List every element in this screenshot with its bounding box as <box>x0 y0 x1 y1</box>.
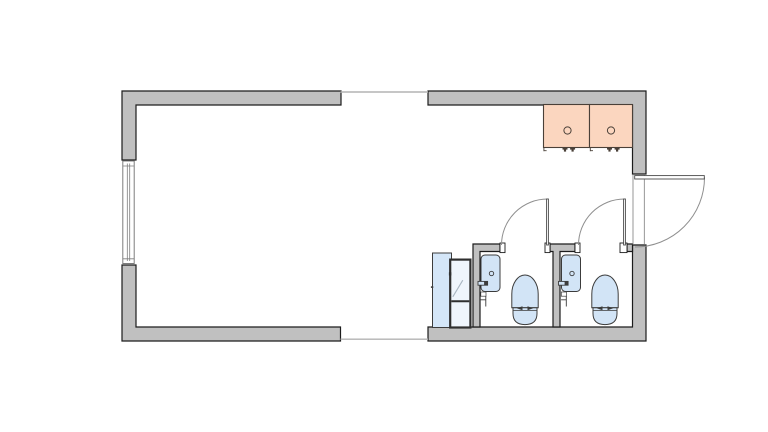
door-jamb <box>575 243 580 253</box>
glide-mark <box>564 148 565 151</box>
stall-door-1-leaf <box>547 199 549 245</box>
desk-1 <box>544 105 590 148</box>
desk-2-grommet <box>607 127 614 134</box>
glide-mark <box>617 148 618 151</box>
exterior-door-leaf <box>635 176 705 179</box>
page-background <box>0 0 768 432</box>
glide-mark <box>609 148 610 151</box>
exterior-door-frame <box>633 175 644 245</box>
floor-plan-canvas <box>0 0 768 432</box>
desk-2 <box>590 105 633 148</box>
door-jamb <box>500 243 505 253</box>
stall-door-2-leaf <box>624 199 626 245</box>
sink-1-faucet-handle <box>485 282 488 285</box>
toilet-1 <box>512 275 538 325</box>
sink-2-basin <box>562 255 581 292</box>
utility-door-handle <box>449 272 451 275</box>
toilet-2 <box>592 275 618 325</box>
utility-glass-panel <box>433 253 452 328</box>
toilet-1-bowl <box>512 275 538 308</box>
utility-glass-unit <box>431 253 471 328</box>
toilet-2-bowl <box>592 275 618 308</box>
utility-panel-hinge-mark <box>431 286 433 288</box>
desks-group <box>544 105 633 148</box>
utility-glass-door-frame <box>450 260 470 328</box>
sink-1-basin <box>481 255 500 292</box>
glide-mark <box>572 148 573 151</box>
window <box>123 161 134 264</box>
window-frame <box>123 161 134 264</box>
desk-1-grommet <box>564 127 571 134</box>
sink-2-faucet-handle <box>565 282 568 285</box>
floor-plan-drawing <box>0 0 768 432</box>
stall-wall-right-piece <box>627 244 633 252</box>
